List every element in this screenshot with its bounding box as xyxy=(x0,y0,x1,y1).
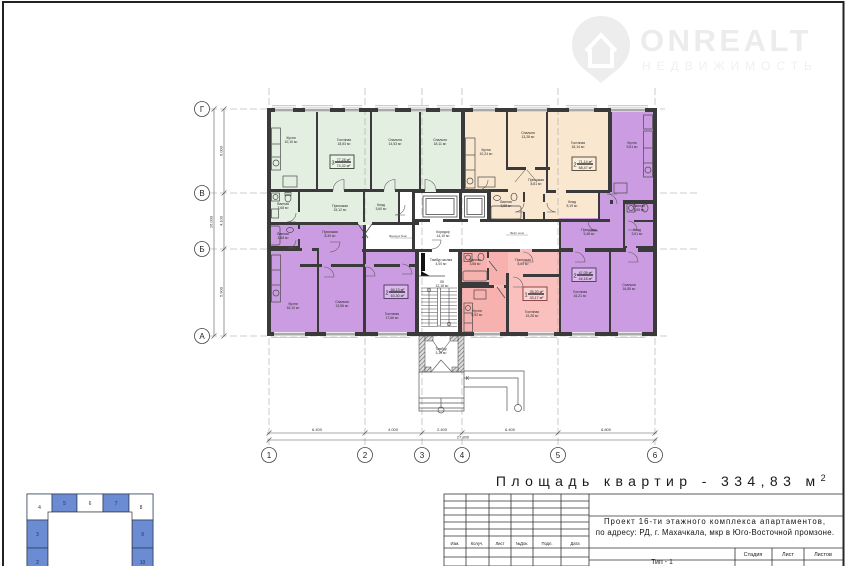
svg-text:Тип - 1: Тип - 1 xyxy=(651,559,673,566)
svg-text:63,30 м²: 63,30 м² xyxy=(391,294,405,298)
svg-text:Б: Б xyxy=(199,245,204,254)
svg-text:Выход в блок: Выход в блок xyxy=(389,234,407,238)
svg-text:18,53 м²: 18,53 м² xyxy=(338,142,352,146)
svg-text:16,21 м²: 16,21 м² xyxy=(574,294,588,298)
svg-text:6,92 м²: 6,92 м² xyxy=(471,313,483,317)
svg-text:74,32 м²: 74,32 м² xyxy=(337,164,351,168)
svg-text:77,28 м²: 77,28 м² xyxy=(337,158,351,162)
svg-text:Лифт. холл: Лифт. холл xyxy=(510,231,525,235)
svg-text:Лист: Лист xyxy=(782,552,794,558)
svg-text:Подп.: Подп. xyxy=(541,541,552,546)
svg-text:6: 6 xyxy=(653,451,658,460)
svg-text:6.800: 6.800 xyxy=(601,427,612,432)
svg-text:10,24 м²: 10,24 м² xyxy=(480,152,494,156)
svg-text:4: 4 xyxy=(38,505,41,511)
svg-text:2: 2 xyxy=(36,560,39,566)
svg-text:9: 9 xyxy=(141,532,144,538)
svg-text:17,66 м²: 17,66 м² xyxy=(386,316,400,320)
svg-text:14,53 м²: 14,53 м² xyxy=(389,142,403,146)
svg-text:Лист: Лист xyxy=(495,541,504,546)
svg-text:Колуч.: Колуч. xyxy=(471,541,484,546)
svg-text:14,10 м²: 14,10 м² xyxy=(437,234,451,238)
svg-text:5: 5 xyxy=(63,501,66,507)
svg-text:35,20 м²: 35,20 м² xyxy=(530,290,544,294)
svg-text:Стадия: Стадия xyxy=(744,552,763,558)
svg-text:1: 1 xyxy=(267,451,272,460)
svg-text:33,17 м²: 33,17 м² xyxy=(530,296,544,300)
svg-text:15,12 м²: 15,12 м² xyxy=(334,208,348,212)
svg-text:5.900: 5.900 xyxy=(219,286,224,297)
svg-text:5,19 м²: 5,19 м² xyxy=(566,204,578,208)
svg-text:3,68 м²: 3,68 м² xyxy=(277,236,289,240)
svg-text:Проект 16-ти этажного комплекс: Проект 16-ти этажного комплекса апартаме… xyxy=(604,517,826,526)
svg-text:6.400: 6.400 xyxy=(312,427,323,432)
svg-text:3: 3 xyxy=(420,451,425,460)
svg-text:6.000: 6.000 xyxy=(219,145,224,156)
svg-text:27.800: 27.800 xyxy=(457,435,470,440)
svg-text:3,51 м²: 3,51 м² xyxy=(631,232,643,236)
svg-text:ONREALT: ONREALT xyxy=(640,23,812,58)
svg-text:12,18 м²: 12,18 м² xyxy=(436,284,450,288)
svg-text:2.400: 2.400 xyxy=(437,427,448,432)
svg-text:Листов: Листов xyxy=(814,552,832,558)
svg-text:3,55 м²: 3,55 м² xyxy=(633,208,645,212)
svg-text:66,13 м²: 66,13 м² xyxy=(391,288,405,292)
svg-text:8: 8 xyxy=(140,505,143,511)
svg-text:В: В xyxy=(199,189,204,198)
svg-text:3,60 м²: 3,60 м² xyxy=(375,207,387,211)
svg-text:4: 4 xyxy=(460,451,465,460)
svg-text:7: 7 xyxy=(115,501,118,507)
svg-text:9,61 м²: 9,61 м² xyxy=(626,145,638,149)
svg-text:6: 6 xyxy=(89,501,92,507)
svg-text:Дата: Дата xyxy=(570,541,580,546)
svg-text:13,28 м²: 13,28 м² xyxy=(522,135,536,139)
svg-text:8,30 м²: 8,30 м² xyxy=(324,234,336,238)
svg-text:№Док.: №Док. xyxy=(516,541,529,546)
svg-text:2: 2 xyxy=(573,162,576,168)
svg-text:8,69 м²: 8,69 м² xyxy=(517,262,529,266)
svg-text:5: 5 xyxy=(556,451,561,460)
svg-text:47,05 м²: 47,05 м² xyxy=(579,271,593,275)
svg-text:2: 2 xyxy=(573,273,576,279)
svg-text:А: А xyxy=(199,332,205,341)
svg-text:4,00 м²: 4,00 м² xyxy=(435,262,447,266)
svg-text:3,85 м²: 3,85 м² xyxy=(500,204,512,208)
svg-text:Г: Г xyxy=(200,105,205,114)
svg-text:44,18 м²: 44,18 м² xyxy=(579,277,593,281)
svg-text:10,10 м²: 10,10 м² xyxy=(285,140,299,144)
svg-text:2: 2 xyxy=(385,290,388,296)
svg-text:18,11 м²: 18,11 м² xyxy=(434,142,448,146)
svg-text:4.100: 4.100 xyxy=(219,215,224,226)
svg-text:3: 3 xyxy=(331,160,334,166)
svg-text:71,14 м²: 71,14 м² xyxy=(579,160,593,164)
svg-text:К: К xyxy=(466,376,469,382)
svg-text:1: 1 xyxy=(524,292,527,298)
svg-text:по адресу: РД, г. Махачкала, м: по адресу: РД, г. Махачкала, мкр в Юго-В… xyxy=(596,528,835,537)
svg-text:3,10 м²: 3,10 м² xyxy=(435,351,447,355)
svg-text:3,68 м²: 3,68 м² xyxy=(277,206,289,210)
svg-text:16,85 м²: 16,85 м² xyxy=(623,287,637,291)
svg-text:18,14 м²: 18,14 м² xyxy=(572,145,586,149)
svg-text:6.400: 6.400 xyxy=(505,427,516,432)
svg-text:Площадь квартир - 334,83 м2: Площадь квартир - 334,83 м2 xyxy=(496,473,831,489)
svg-text:3: 3 xyxy=(36,532,39,538)
svg-text:3,56 м²: 3,56 м² xyxy=(469,262,481,266)
svg-text:19,28 м²: 19,28 м² xyxy=(526,314,540,318)
svg-text:НЕДВИЖИМОСТЬ: НЕДВИЖИМОСТЬ xyxy=(642,59,818,73)
svg-text:10: 10 xyxy=(140,560,146,566)
svg-text:2: 2 xyxy=(363,451,368,460)
svg-text:16,10 м²: 16,10 м² xyxy=(287,306,301,310)
svg-text:9,48 м²: 9,48 м² xyxy=(583,232,595,236)
svg-text:16.000: 16.000 xyxy=(209,215,214,228)
svg-text:4.000: 4.000 xyxy=(388,427,399,432)
svg-text:68,47 м²: 68,47 м² xyxy=(579,166,593,170)
svg-text:Изм.: Изм. xyxy=(451,541,460,546)
svg-text:13,56 м²: 13,56 м² xyxy=(336,304,350,308)
svg-text:8,81 м²: 8,81 м² xyxy=(530,182,542,186)
